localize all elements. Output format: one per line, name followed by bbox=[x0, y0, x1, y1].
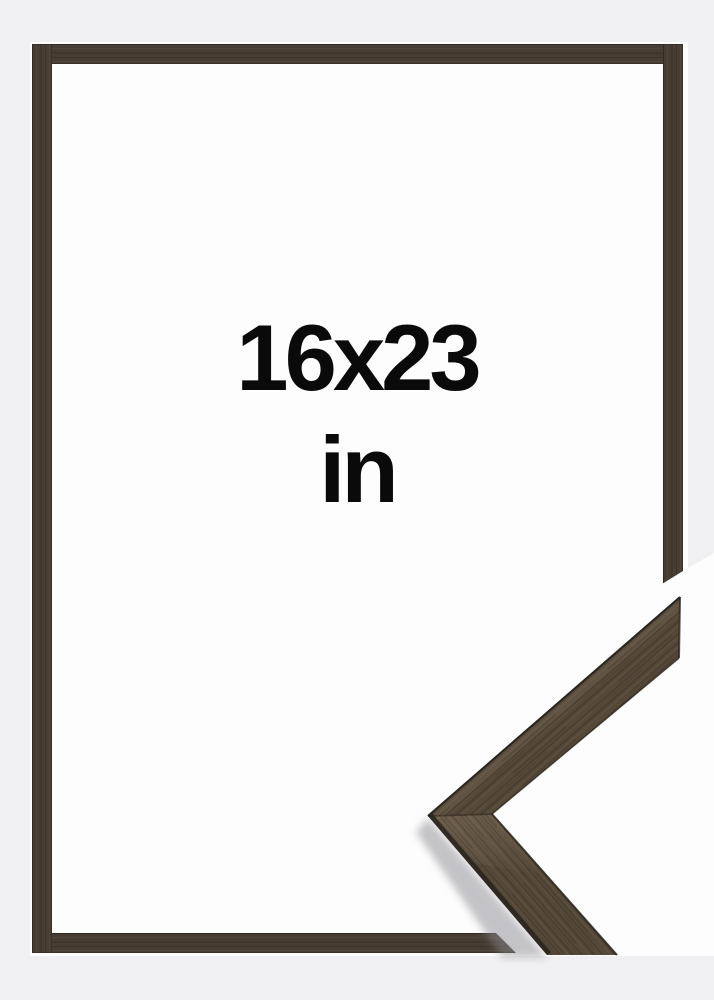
size-label-dimensions: 16x23 bbox=[0, 302, 714, 414]
size-label-unit: in bbox=[0, 414, 714, 526]
product-image: 16x23 in bbox=[0, 0, 714, 1000]
size-label: 16x23 in bbox=[0, 302, 714, 526]
frame-border-top bbox=[32, 44, 683, 64]
frame-border-bottom bbox=[32, 933, 683, 953]
